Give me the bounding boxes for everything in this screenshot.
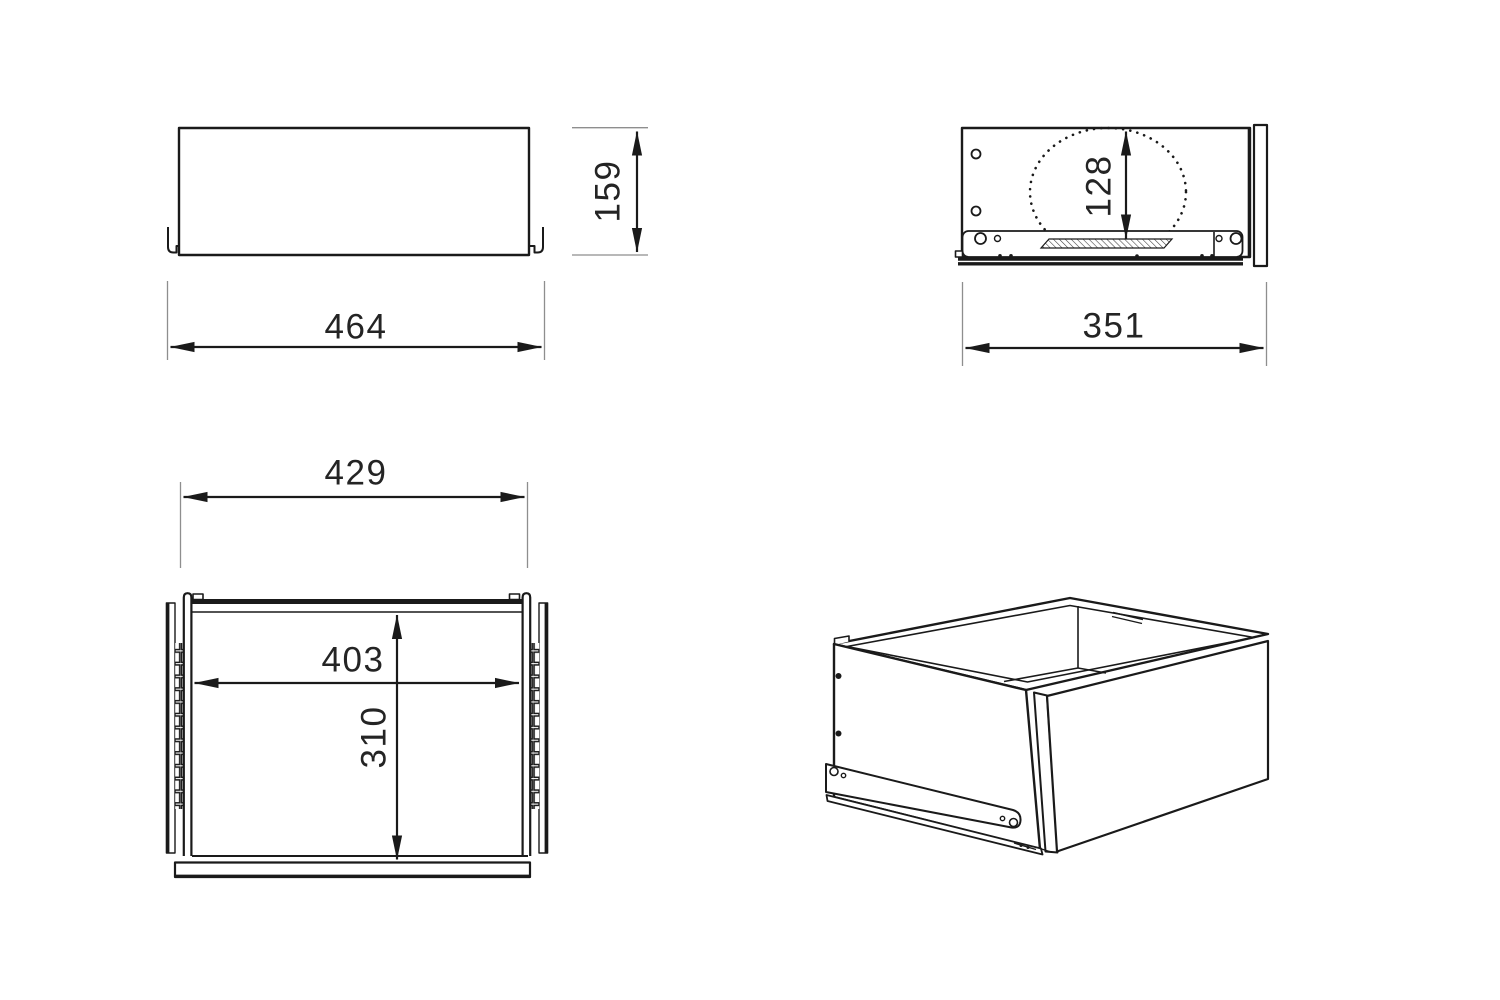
bracket-hole — [1231, 233, 1242, 244]
bracket-hole — [1010, 819, 1018, 827]
front-width-label: 464 — [325, 310, 388, 345]
panel-hole — [836, 673, 842, 679]
screw-hole — [972, 207, 981, 216]
screw-hole — [972, 150, 981, 159]
bracket-hole — [975, 233, 986, 244]
drawing-linework — [0, 0, 1500, 1000]
side-inner-height-label: 128 — [1082, 155, 1117, 218]
left-rail-segments — [175, 643, 184, 809]
hatched-strip — [1041, 239, 1172, 248]
back-panel-tab — [193, 594, 203, 600]
bracket-hole — [830, 768, 838, 776]
right-wall — [523, 593, 531, 856]
front-view — [168, 128, 543, 255]
bracket-hole — [1216, 236, 1222, 242]
right-hook — [528, 227, 543, 253]
top-outer-width-label: 429 — [325, 456, 388, 491]
isometric-view — [826, 598, 1268, 855]
drawing-canvas: 464 159 351 128 429 403 310 — [0, 0, 1500, 1000]
front-panel-edge — [1254, 125, 1267, 266]
panel-hole — [836, 731, 842, 737]
top-inner-width-label: 403 — [322, 643, 385, 678]
side-width-label: 351 — [1083, 309, 1146, 344]
left-wall — [184, 593, 192, 856]
front-height-label: 159 — [591, 160, 626, 223]
back-panel-tab — [510, 594, 520, 600]
right-rail-segments — [531, 643, 540, 809]
bracket-hole — [841, 773, 845, 777]
bracket-hole — [1000, 816, 1004, 820]
top-inner-depth-label: 310 — [357, 706, 392, 769]
bracket-hole — [995, 236, 1001, 242]
